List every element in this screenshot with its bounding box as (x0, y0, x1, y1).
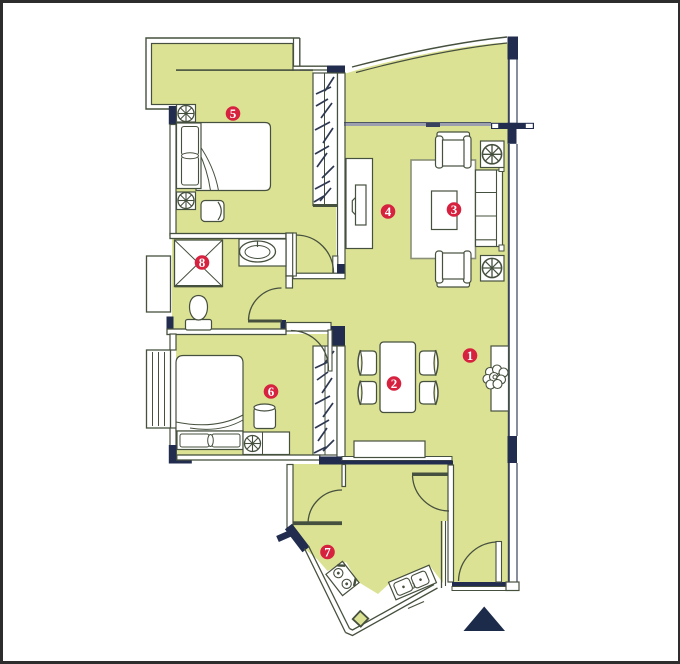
svg-text:3: 3 (451, 202, 458, 217)
svg-text:7: 7 (324, 545, 331, 560)
svg-text:8: 8 (199, 255, 206, 270)
svg-text:5: 5 (230, 106, 237, 121)
svg-text:2: 2 (391, 376, 398, 391)
svg-text:6: 6 (268, 384, 275, 399)
svg-text:4: 4 (385, 204, 392, 219)
svg-text:1: 1 (467, 348, 474, 363)
